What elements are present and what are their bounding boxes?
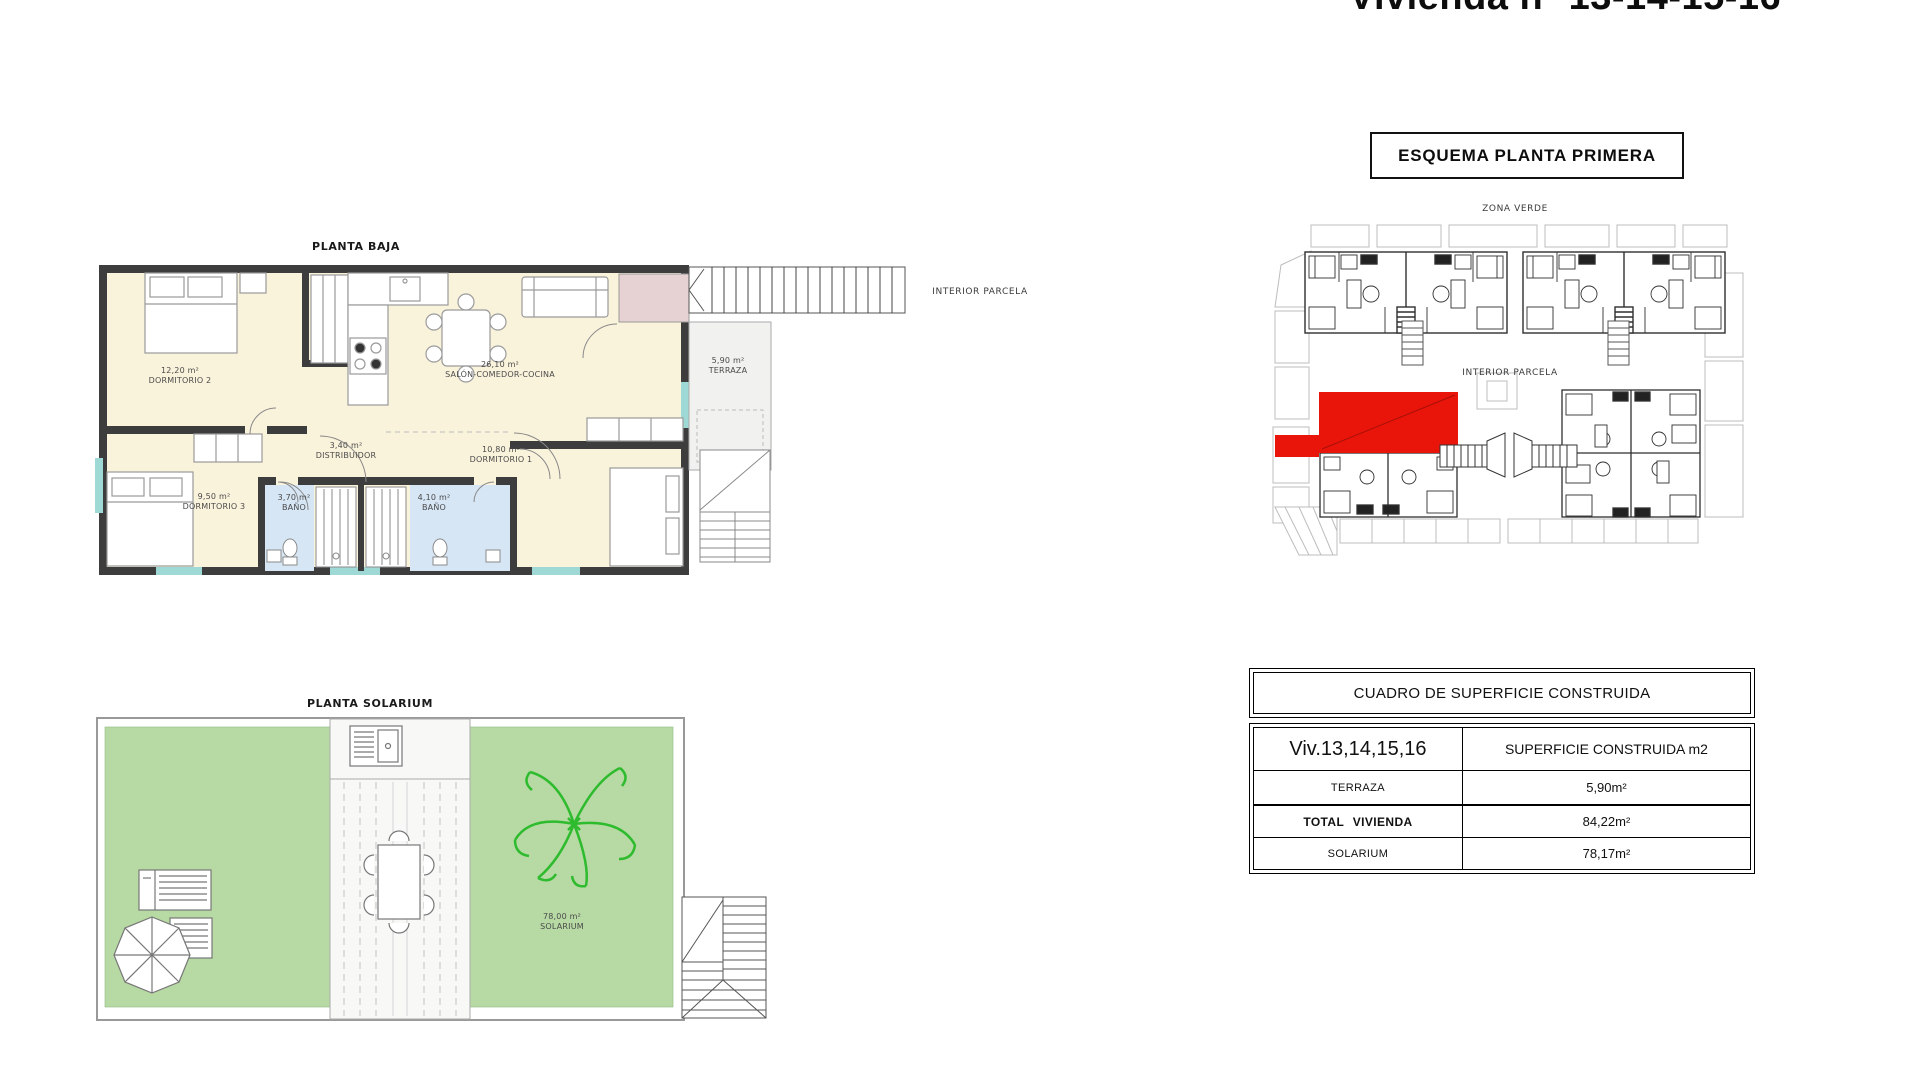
planta-baja-title: PLANTA BAJA bbox=[256, 240, 456, 253]
sink-unit bbox=[350, 726, 402, 766]
window bbox=[532, 567, 580, 575]
room-label-terraza: 5,90 m²TERRAZA bbox=[653, 356, 803, 376]
window bbox=[95, 458, 103, 513]
room-label-dormitorio-1: 10,80 m²DORMITORIO 1 bbox=[426, 445, 576, 465]
solarium-stairs bbox=[682, 897, 766, 1018]
table-row-total-vivienda: TOTAL VIVIENDA 84,22m² bbox=[1254, 806, 1750, 838]
planta-solarium-plan bbox=[90, 710, 790, 1055]
esquema-title-box: ESQUEMA PLANTA PRIMERA bbox=[1370, 132, 1684, 179]
zona-verde-label: ZONA VERDE bbox=[1482, 204, 1548, 215]
room-label-distribuidor: 3,40 m²DISTRIBUIDOR bbox=[271, 441, 421, 461]
esquema-title: ESQUEMA PLANTA PRIMERA bbox=[1398, 146, 1656, 166]
solarium-deck-right bbox=[470, 727, 673, 1007]
highlighted-unit-arm bbox=[1275, 435, 1319, 457]
surface-table: CUADRO DE SUPERFICIE CONSTRUIDA Viv.13,1… bbox=[1249, 668, 1755, 874]
room-label-dormitorio-2: 12,20 m²DORMITORIO 2 bbox=[105, 366, 255, 386]
terrace bbox=[689, 322, 771, 470]
planta-solarium-title: PLANTA SOLARIUM bbox=[270, 697, 470, 710]
interior-parcela-label-left: INTERIOR PARCELA bbox=[932, 287, 1027, 298]
surface-table-body-box: Viv.13,14,15,16 SUPERFICIE CONSTRUIDA m2… bbox=[1249, 723, 1755, 874]
porch bbox=[619, 274, 689, 322]
planta-baja-plan bbox=[90, 260, 960, 580]
parasol bbox=[114, 917, 190, 993]
exterior-stairs-side bbox=[700, 450, 770, 562]
surface-table-title-box: CUADRO DE SUPERFICIE CONSTRUIDA bbox=[1249, 668, 1755, 718]
page-title: Vivienda nº 13-14-15-16 bbox=[1265, 0, 1865, 18]
site-stairs-middle bbox=[1440, 433, 1577, 477]
room-label-bano-2: 4,10 m²BAÑO bbox=[359, 493, 509, 513]
room-label-solarium: 78,00 m²SOLARIUM bbox=[487, 912, 637, 932]
building-bottom-right bbox=[1562, 390, 1700, 517]
surface-header: SUPERFICIE CONSTRUIDA m2 bbox=[1463, 728, 1750, 770]
room-label-bano-1: 3,70 m²BAÑO bbox=[219, 493, 369, 513]
building-bottom-left bbox=[1320, 453, 1457, 517]
room-label-salon: 26,10 m²SALÓN-COMEDOR-COCINA bbox=[425, 360, 575, 380]
table-row-terraza: TERRAZA 5,90m² bbox=[1254, 771, 1750, 806]
table-row-solarium: SOLARIUM 78,17m² bbox=[1254, 838, 1750, 869]
window bbox=[330, 567, 380, 575]
exterior-stairs-top bbox=[689, 267, 905, 313]
surface-table-header-row: Viv.13,14,15,16 SUPERFICIE CONSTRUIDA m2 bbox=[1254, 728, 1750, 771]
site-plan bbox=[1265, 215, 1765, 565]
units-header: Viv.13,14,15,16 bbox=[1254, 728, 1463, 770]
window bbox=[156, 567, 202, 575]
surface-table-title: CUADRO DE SUPERFICIE CONSTRUIDA bbox=[1354, 685, 1651, 702]
floor-plan-sheet: Vivienda nº 13-14-15-16 PLANTA BAJA bbox=[0, 0, 1920, 1080]
interior-parcela-label-site: INTERIOR PARCELA bbox=[1462, 368, 1557, 379]
